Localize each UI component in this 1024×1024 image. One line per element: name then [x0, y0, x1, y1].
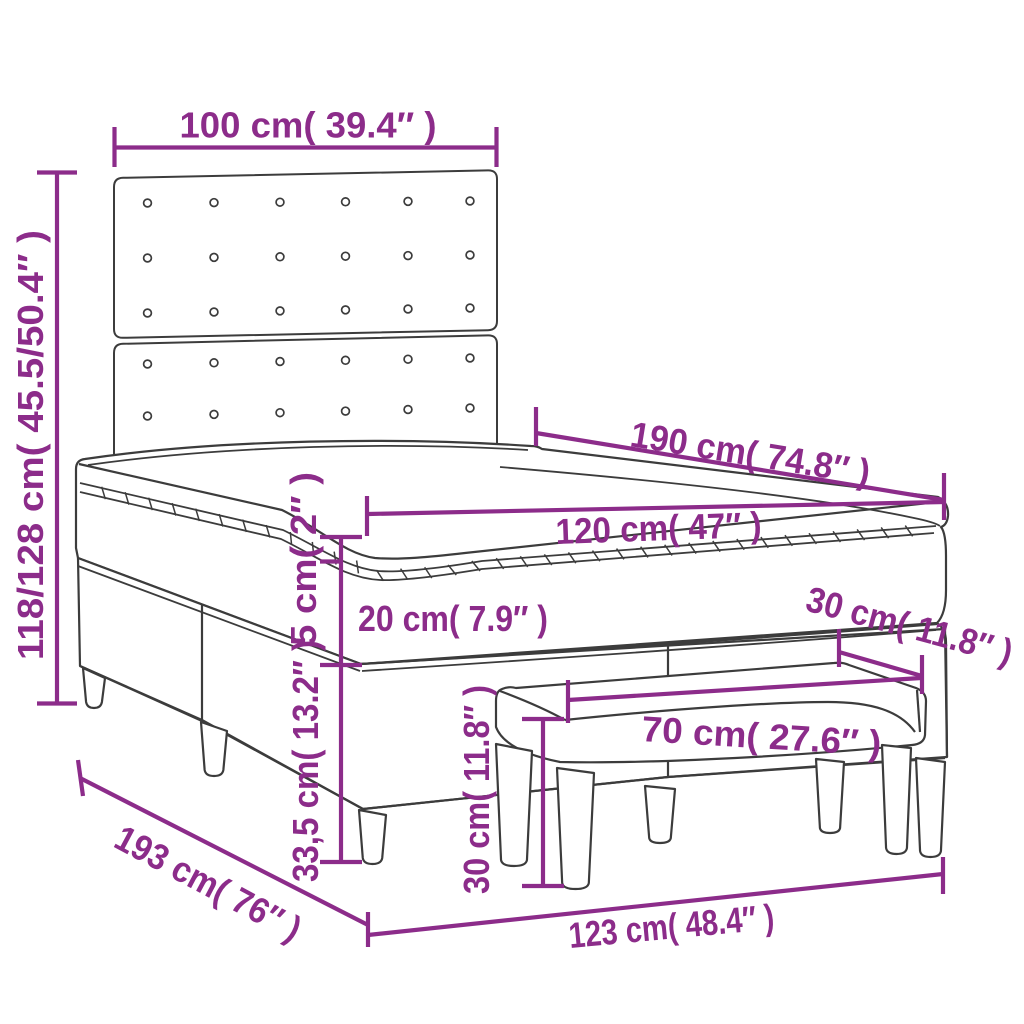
- svg-text:20 cm( 7.9″ ): 20 cm( 7.9″ ): [358, 598, 548, 639]
- svg-text:118/128 cm( 45.5/50.4″ ): 118/128 cm( 45.5/50.4″ ): [10, 230, 51, 660]
- svg-text:5 cm( 2″ ): 5 cm( 2″ ): [283, 472, 324, 646]
- svg-text:120 cm( 47″ ): 120 cm( 47″ ): [555, 504, 762, 552]
- svg-text:30 cm( 11.8″ ): 30 cm( 11.8″ ): [456, 685, 497, 894]
- svg-text:33,5 cm( 13.2″ ): 33,5 cm( 13.2″ ): [285, 640, 326, 882]
- svg-text:100 cm( 39.4″ ): 100 cm( 39.4″ ): [180, 105, 437, 146]
